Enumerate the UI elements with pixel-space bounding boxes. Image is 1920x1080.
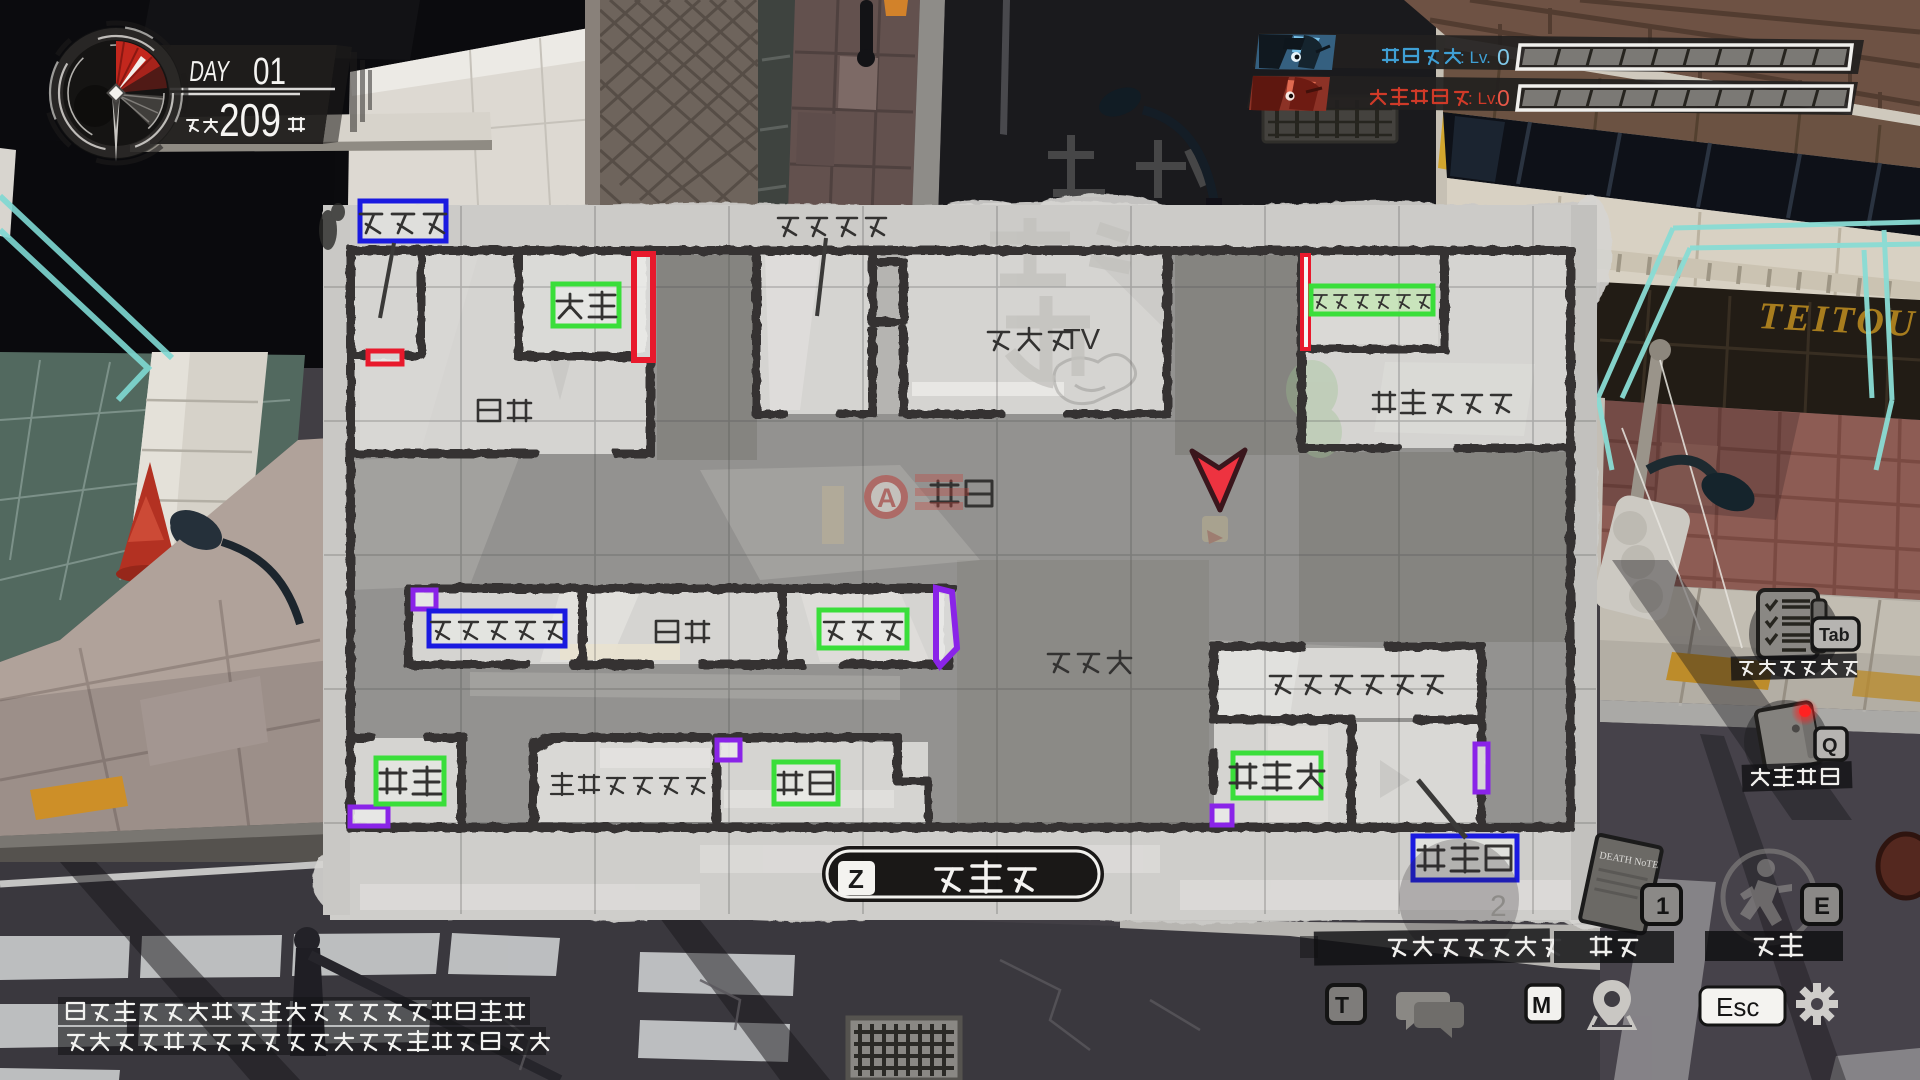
svg-text:A: A <box>877 483 897 513</box>
svg-text:: Lv.: : Lv. <box>1460 48 1491 67</box>
svg-text:1: 1 <box>1656 893 1669 920</box>
svg-text:Esc: Esc <box>1716 992 1759 1022</box>
svg-text:Q: Q <box>1822 735 1838 757</box>
svg-text:: Lv.: : Lv. <box>1468 89 1499 108</box>
svg-text:M: M <box>1532 992 1551 1018</box>
svg-text:Tab: Tab <box>1819 625 1850 645</box>
svg-text:E: E <box>1814 893 1830 920</box>
svg-text:TEITOU: TEITOU <box>1758 295 1919 345</box>
svg-text:0: 0 <box>1497 44 1510 70</box>
svg-text:0: 0 <box>1497 85 1510 111</box>
svg-text:209: 209 <box>219 94 281 146</box>
svg-text:2: 2 <box>1490 890 1507 923</box>
svg-text:DAY: DAY <box>188 56 231 88</box>
svg-text:T: T <box>1335 992 1349 1018</box>
svg-text:Z: Z <box>848 864 864 894</box>
svg-text:TV: TV <box>1063 324 1101 356</box>
svg-text:01: 01 <box>253 51 286 93</box>
